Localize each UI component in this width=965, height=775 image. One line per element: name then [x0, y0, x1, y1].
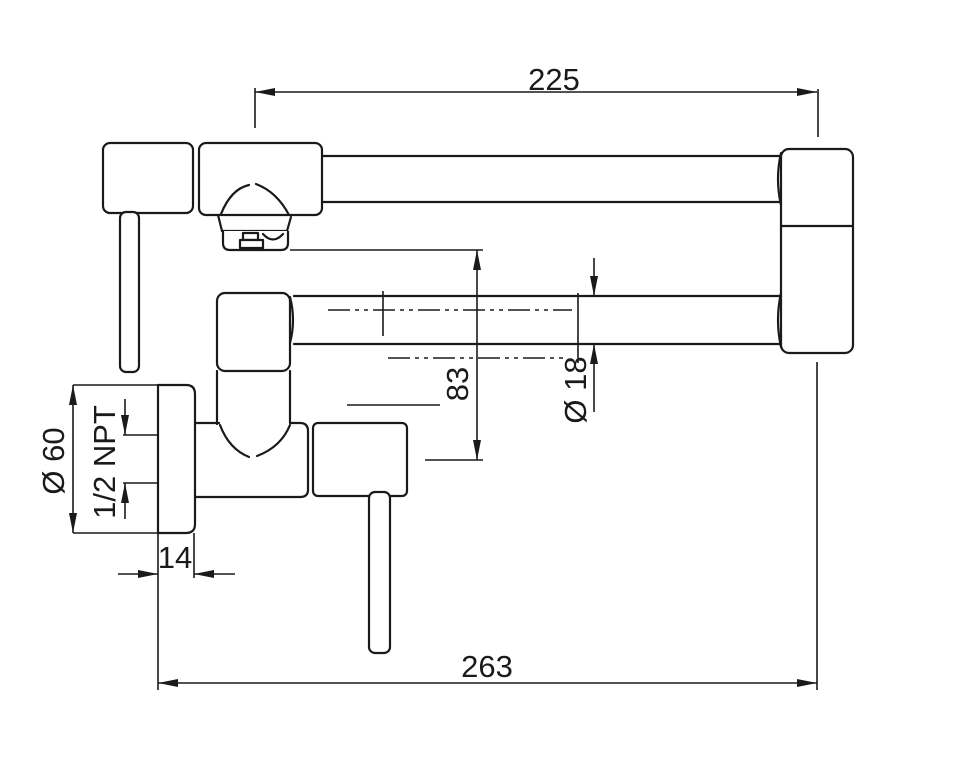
dimension-label-225: 225 [528, 62, 580, 97]
technical-drawing-canvas: 225 83 Ø 18 Ø 60 1/2 NPT 14 [0, 0, 965, 775]
dimension-label-83: 83 [440, 367, 475, 401]
dimension-14: 14 [118, 533, 235, 578]
swivel-sleeve [217, 293, 290, 424]
valve-lever-handle [369, 492, 390, 653]
lower-arm-pipe [290, 293, 781, 347]
valve-dome-right-curve [257, 425, 290, 456]
pot-filler-drawing: 225 83 Ø 18 Ø 60 1/2 NPT 14 [0, 0, 965, 775]
valve-handle-block [313, 423, 407, 496]
dimension-label-diameter-18: Ø 18 [558, 356, 593, 423]
spout-head [103, 143, 322, 215]
dimension-label-thread-npt: 1/2 NPT [87, 405, 122, 519]
spout-nozzle [218, 215, 291, 250]
spout-joint-housing [199, 143, 322, 215]
dimension-label-14: 14 [158, 540, 192, 575]
spout-valve-body [103, 143, 193, 213]
dimension-thread-npt: 1/2 NPT [87, 399, 158, 519]
dimension-label-diameter-60: Ø 60 [36, 427, 71, 494]
dimension-263: 263 [158, 362, 817, 690]
dimension-diameter-18: Ø 18 [558, 258, 594, 424]
inlet-valve-body [195, 423, 308, 497]
elbow-joint-block [781, 149, 853, 353]
upper-arm-pipe [322, 153, 781, 205]
wall-flange [158, 385, 195, 533]
dimension-label-263: 263 [461, 649, 513, 684]
valve-dome-left-curve [220, 425, 249, 457]
dimension-225: 225 [255, 62, 818, 137]
spout-lever-handle [120, 212, 139, 372]
aerator-detail-rect-wide [240, 240, 263, 248]
